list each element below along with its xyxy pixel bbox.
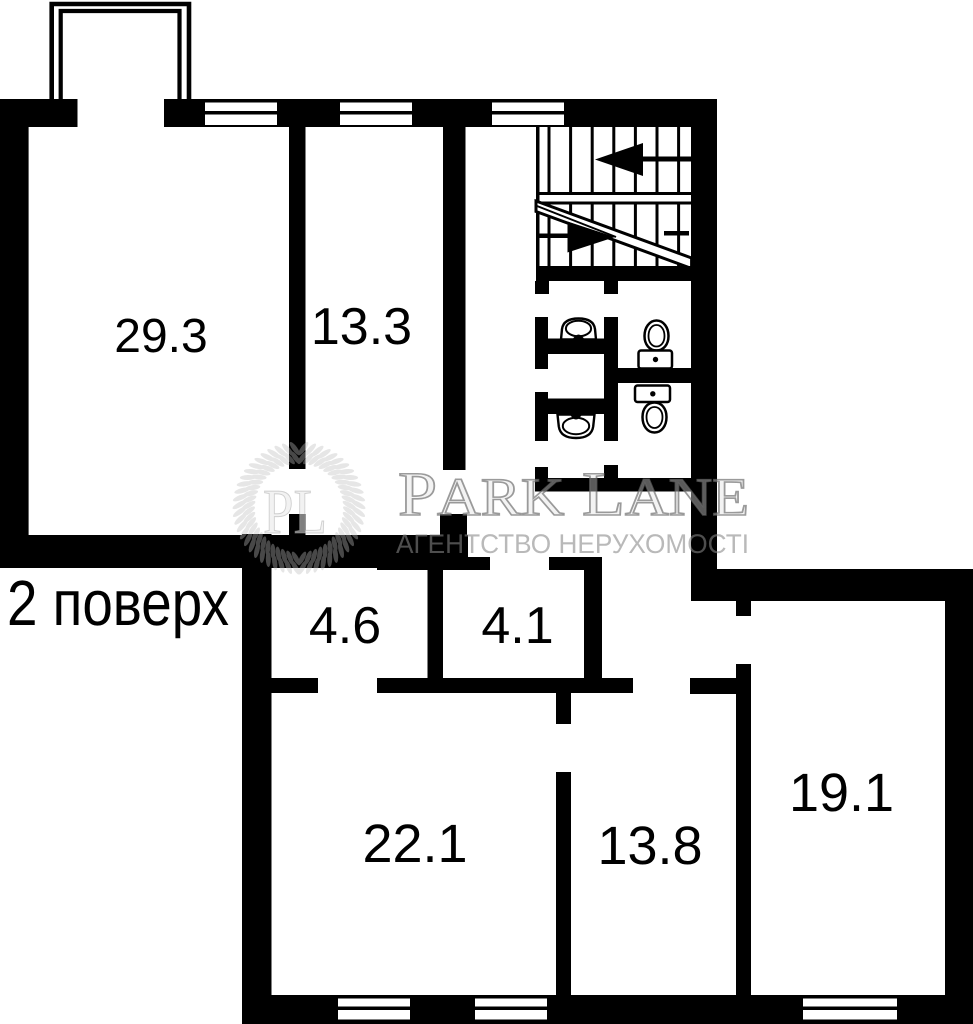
svg-text:4.1: 4.1 bbox=[481, 597, 553, 655]
svg-text:22.1: 22.1 bbox=[362, 814, 467, 874]
svg-text:29.3: 29.3 bbox=[114, 310, 207, 363]
svg-text:13.8: 13.8 bbox=[597, 816, 702, 876]
svg-text:13.3: 13.3 bbox=[311, 298, 412, 356]
svg-text:2 поверх: 2 поверх bbox=[7, 567, 229, 639]
svg-text:PARK LANE: PARK LANE bbox=[398, 459, 749, 529]
svg-text:4.6: 4.6 bbox=[309, 597, 381, 655]
svg-text:19.1: 19.1 bbox=[789, 763, 894, 823]
svg-text:АГЕНТСТВО НЕРУХОМОСТІ: АГЕНТСТВО НЕРУХОМОСТІ bbox=[396, 529, 749, 559]
svg-text:PL: PL bbox=[263, 476, 327, 547]
